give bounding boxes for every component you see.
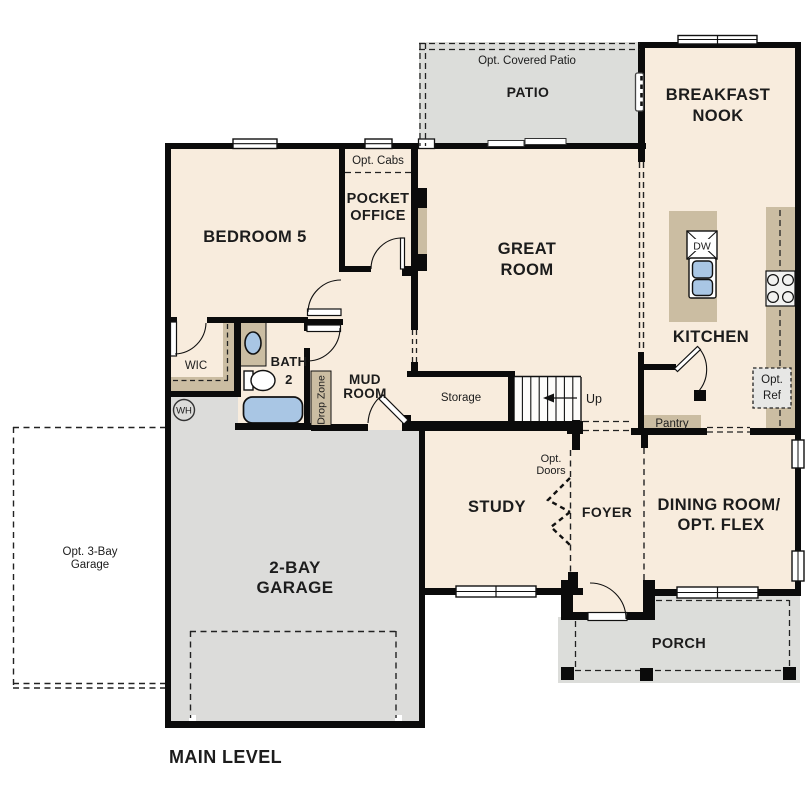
svg-text:BREAKFAST: BREAKFAST: [666, 86, 770, 104]
svg-text:Garage: Garage: [71, 559, 109, 571]
svg-text:GARAGE: GARAGE: [256, 578, 333, 597]
svg-text:ROOM: ROOM: [343, 386, 387, 401]
svg-text:BATH: BATH: [271, 354, 308, 369]
svg-text:POCKET: POCKET: [347, 191, 410, 207]
svg-text:ROOM: ROOM: [501, 261, 554, 279]
svg-text:PORCH: PORCH: [652, 636, 706, 652]
svg-text:MUD: MUD: [349, 372, 381, 387]
svg-text:Pantry: Pantry: [655, 418, 688, 430]
svg-text:2-BAY: 2-BAY: [269, 558, 321, 577]
svg-text:BEDROOM 5: BEDROOM 5: [203, 228, 307, 246]
svg-text:Drop Zone: Drop Zone: [316, 375, 328, 425]
svg-text:PATIO: PATIO: [507, 84, 550, 100]
svg-text:2: 2: [285, 372, 293, 387]
svg-text:NOOK: NOOK: [692, 107, 743, 125]
svg-text:DINING ROOM/: DINING ROOM/: [657, 496, 780, 514]
svg-text:FOYER: FOYER: [582, 504, 632, 520]
svg-text:OFFICE: OFFICE: [350, 208, 406, 224]
svg-text:Ref: Ref: [763, 390, 782, 402]
svg-text:DW: DW: [693, 241, 711, 253]
svg-text:Opt. Covered Patio: Opt. Covered Patio: [478, 55, 576, 67]
svg-text:Storage: Storage: [441, 392, 481, 404]
svg-text:OPT. FLEX: OPT. FLEX: [677, 516, 764, 534]
svg-text:GREAT: GREAT: [498, 240, 557, 258]
svg-text:Opt. Cabs: Opt. Cabs: [352, 155, 404, 167]
svg-text:WIC: WIC: [185, 360, 207, 372]
svg-text:WH: WH: [176, 406, 192, 417]
svg-text:STUDY: STUDY: [468, 498, 526, 516]
svg-text:Doors: Doors: [536, 465, 566, 477]
svg-text:MAIN LEVEL: MAIN LEVEL: [169, 747, 282, 767]
svg-text:Opt.: Opt.: [761, 374, 783, 386]
svg-text:Opt. 3-Bay: Opt. 3-Bay: [63, 546, 118, 558]
svg-text:Up: Up: [586, 392, 602, 406]
svg-text:Opt.: Opt.: [541, 453, 562, 465]
svg-text:KITCHEN: KITCHEN: [673, 328, 749, 346]
